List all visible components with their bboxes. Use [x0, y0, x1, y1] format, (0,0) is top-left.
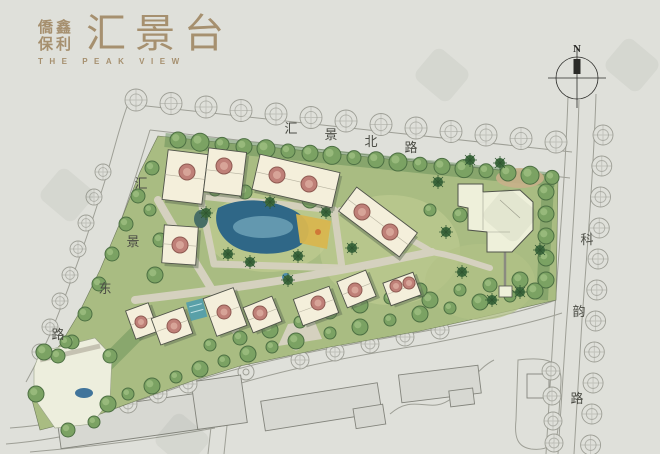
tree-icon [444, 302, 456, 314]
plaza-water-feature [75, 388, 93, 398]
tree-icon [302, 145, 318, 161]
roof-feature [217, 305, 231, 319]
street-tree-icon [62, 267, 78, 283]
street-tree-icon [544, 412, 562, 430]
road-label-char: 科 [580, 232, 593, 247]
tree-icon [538, 184, 554, 200]
road-label-char: 汇 [134, 176, 147, 191]
street-tree-icon [587, 280, 607, 300]
brand-name: 僑鑫 保利 [38, 14, 74, 54]
palm-icon [533, 243, 547, 257]
street-tree-icon [195, 96, 217, 118]
tree-icon [347, 151, 361, 165]
tree-icon [144, 204, 156, 216]
tree-icon [483, 278, 497, 292]
palm-icon [345, 241, 359, 255]
street-tree-icon [440, 121, 462, 143]
palm-icon [455, 265, 469, 279]
palm-icon [199, 206, 213, 220]
street-tree-icon [125, 89, 147, 111]
roof-feature [172, 237, 188, 253]
roof-feature [390, 280, 402, 292]
site-plan-page: 汇景北路汇景东路科韵路N 僑鑫 保利 汇景台 THE PEAK VIEW [0, 0, 660, 454]
street-tree-icon [335, 110, 357, 132]
street-tree-icon [510, 128, 532, 150]
street-tree-icon [300, 107, 322, 129]
tree-icon [352, 319, 368, 335]
tree-icon [454, 284, 466, 296]
tree-icon [413, 157, 427, 171]
tree-icon [324, 327, 336, 339]
brand-logo: 僑鑫 保利 汇景台 THE PEAK VIEW [38, 14, 233, 66]
roof-feature [179, 164, 195, 180]
road-label-char: 路 [51, 327, 64, 342]
roof-feature [216, 158, 232, 174]
roof-feature [311, 296, 325, 310]
palm-icon [485, 293, 499, 307]
road-label-char: 景 [126, 234, 139, 249]
street-tree-icon [581, 435, 601, 454]
roof-feature [253, 306, 267, 320]
tree-icon [288, 333, 304, 349]
tree-icon [434, 158, 450, 174]
street-tree-icon [593, 125, 613, 145]
tree-icon [240, 346, 256, 362]
deck-umbrella [315, 229, 321, 235]
tree-icon [61, 423, 75, 437]
tree-icon [521, 166, 539, 184]
street-tree-icon [230, 100, 252, 122]
street-tree-icon [586, 311, 606, 331]
tree-icon [266, 341, 278, 353]
street-tree-icon [545, 131, 567, 153]
street-tree-icon [542, 362, 560, 380]
tree-icon [144, 378, 160, 394]
palm-icon [513, 285, 527, 299]
tree-icon [368, 152, 384, 168]
palm-icon [281, 273, 295, 287]
tree-icon [527, 283, 543, 299]
street-tree-icon [95, 164, 111, 180]
project-title: 汇景台 [86, 14, 233, 54]
tree-icon [105, 247, 119, 261]
tree-icon [412, 306, 428, 322]
palm-icon [493, 156, 507, 170]
tree-icon [233, 331, 247, 345]
street-tree-icon [405, 117, 427, 139]
street-tree-icon [591, 187, 611, 207]
palm-icon [431, 175, 445, 189]
tree-icon [145, 161, 159, 175]
tree-icon [323, 146, 341, 164]
street-tree-icon [583, 373, 603, 393]
tree-icon [479, 164, 493, 178]
tree-icon [170, 132, 186, 148]
palm-icon [291, 249, 305, 263]
masterplan-rendering: 汇景北路汇景东路科韵路N [0, 0, 660, 454]
tree-icon [453, 208, 467, 222]
roof-feature [382, 224, 398, 240]
street-tree-icon [588, 249, 608, 269]
palm-icon [439, 225, 453, 239]
tree-icon [147, 267, 163, 283]
tree-icon [28, 386, 44, 402]
street-tree-icon [52, 293, 68, 309]
street-tree-icon [545, 434, 563, 452]
tree-icon [545, 170, 559, 184]
road-label-char: 路 [404, 140, 417, 155]
tree-icon [472, 294, 488, 310]
palm-icon [221, 247, 235, 261]
street-tree-icon [582, 404, 602, 424]
roof-feature [354, 204, 370, 220]
tree-icon [100, 396, 116, 412]
road-label-char: 东 [98, 281, 111, 296]
roof-feature [403, 277, 415, 289]
street-tree-icon [370, 114, 392, 136]
street-tree-icon [78, 215, 94, 231]
roof-feature [348, 283, 362, 297]
road-label-char: 路 [570, 391, 583, 406]
project-subtitle-en: THE PEAK VIEW [38, 57, 233, 66]
north-label: N [573, 43, 581, 55]
road-label-char: 汇 [284, 121, 297, 136]
tree-icon [538, 206, 554, 222]
brand-name-line1: 僑鑫 [38, 19, 74, 36]
tree-icon [119, 217, 133, 231]
tree-icon [389, 153, 407, 171]
tree-icon [51, 349, 65, 363]
street-tree-icon [543, 387, 561, 405]
palm-icon [463, 153, 477, 167]
tree-icon [538, 228, 554, 244]
tree-icon [78, 307, 92, 321]
tree-icon [131, 189, 145, 203]
tree-icon [204, 339, 216, 351]
street-tree-icon [475, 124, 497, 146]
tree-icon [88, 416, 100, 428]
road-label-char: 北 [364, 134, 377, 149]
road-label-char: 景 [324, 127, 337, 142]
roof-feature [301, 176, 317, 192]
tree-icon [191, 133, 209, 151]
street-tree-icon [584, 342, 604, 362]
tree-icon [36, 344, 52, 360]
roof-feature [167, 319, 181, 333]
tree-icon [218, 355, 230, 367]
street-tree-icon [592, 156, 612, 176]
tree-icon [424, 204, 436, 216]
tree-icon [281, 144, 295, 158]
roof-feature [269, 167, 285, 183]
street-tree-icon [70, 241, 86, 257]
north-pointer [574, 59, 581, 74]
tree-icon [103, 349, 117, 363]
street-tree-icon [160, 93, 182, 115]
tree-icon [500, 165, 516, 181]
tree-icon [170, 371, 182, 383]
roof-feature [135, 316, 147, 328]
palm-icon [243, 255, 257, 269]
tree-icon [122, 388, 134, 400]
tree-icon [384, 314, 396, 326]
brand-name-line2: 保利 [38, 36, 74, 53]
road-label-char: 韵 [572, 304, 585, 319]
tree-icon [192, 361, 208, 377]
